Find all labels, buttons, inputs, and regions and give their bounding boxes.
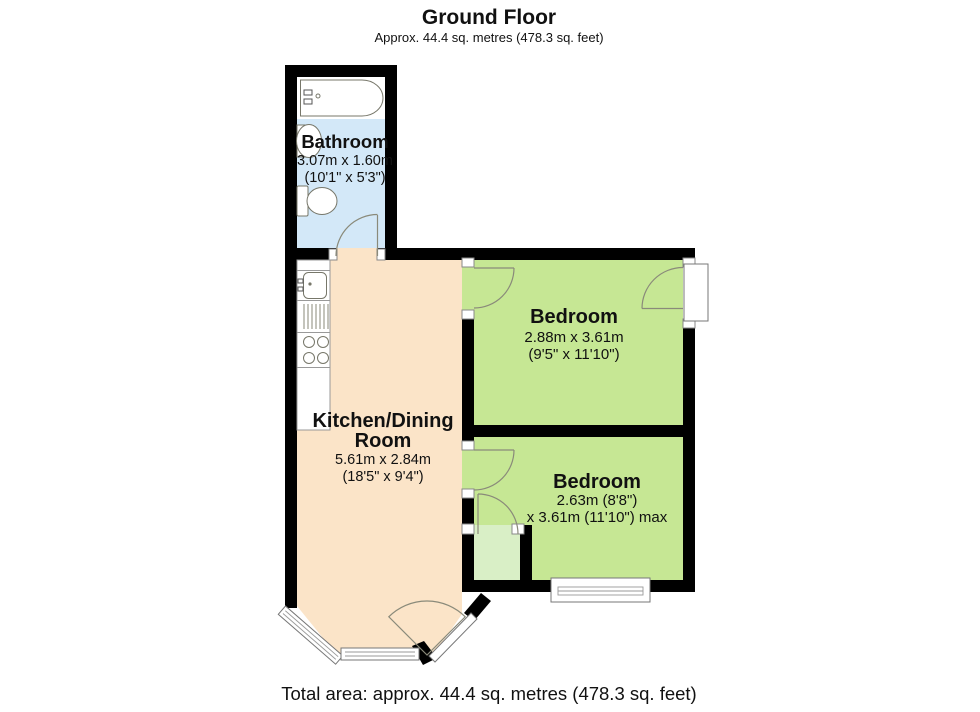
- jamb-bedroom1-door-bottom: [462, 310, 474, 319]
- wall-kitchen-divider-upper: [462, 312, 474, 443]
- jamb-bedroom1-door-top: [462, 258, 474, 267]
- bathtub-icon: [301, 80, 384, 116]
- bedroom2-dims-line2: x 3.61m (11'10") max: [527, 509, 668, 526]
- wall-mid-horizontal-right: [378, 248, 695, 260]
- jamb-bathroom-door-right: [377, 249, 385, 260]
- kitchen-fixtures: [297, 260, 330, 430]
- total-area-text: Total area: approx. 44.4 sq. metres (478…: [281, 683, 696, 704]
- wall-bedroom2-bottom-right: [648, 580, 695, 592]
- floor-plan-svg: Ground Floor Approx. 44.4 sq. metres (47…: [0, 0, 980, 712]
- bedroom2-dims-line1: 2.63m (8'8"): [557, 492, 638, 509]
- bedroom1-name: Bedroom: [530, 306, 618, 328]
- bedroom2-name: Bedroom: [553, 471, 641, 493]
- page-subtitle: Approx. 44.4 sq. metres (478.3 sq. feet): [374, 30, 603, 45]
- bathroom-label: Bathroom 3.07m x 1.60m (10'1" x 5'3"): [297, 131, 393, 186]
- jamb-closet-left: [462, 524, 474, 534]
- bathroom-dims-metric: 3.07m x 1.60m: [297, 153, 393, 169]
- wall-bathroom-top: [285, 65, 397, 77]
- jamb-bedroom2-door-top: [462, 441, 474, 450]
- wall-bedroom-divider: [462, 425, 695, 437]
- bedroom1-dims-metric: 2.88m x 3.61m: [524, 329, 623, 346]
- kitchen-drainer-icon: [304, 304, 328, 329]
- kitchen-dims-metric: 5.61m x 2.84m: [335, 452, 431, 468]
- jamb-bedroom2-door-bottom: [462, 489, 474, 498]
- wall-bedroom2-bottom-left: [520, 580, 553, 592]
- bedroom2-doorway-floor: [462, 449, 474, 490]
- bathroom-doorway-floor: [336, 248, 378, 260]
- wall-left: [285, 65, 297, 608]
- toilet-icon: [297, 186, 337, 216]
- bedroom1-label: Bedroom 2.88m x 3.61m (9'5" x 11'10"): [524, 306, 623, 363]
- floor-plan-page: Ground Floor Approx. 44.4 sq. metres (47…: [0, 0, 980, 712]
- kitchen-dims-imperial: (18'5" x 9'4"): [342, 469, 423, 485]
- bedroom2-window: [551, 578, 650, 602]
- bedroom1-dims-imperial: (9'5" x 11'10"): [528, 346, 619, 363]
- kitchen-name-line2: Room: [355, 430, 412, 452]
- wall-kitchen-divider-lower: [462, 497, 474, 592]
- wall-mid-horizontal-left: [285, 248, 336, 260]
- page-title: Ground Floor: [422, 6, 556, 29]
- bay-window-front: [341, 648, 419, 660]
- bathroom-dims-imperial: (10'1" x 5'3"): [304, 170, 385, 186]
- kitchen-name-line1: Kitchen/Dining: [312, 410, 453, 432]
- bathroom-name: Bathroom: [301, 131, 388, 152]
- wall-right: [683, 320, 695, 592]
- bedroom1-doorway-floor: [462, 266, 474, 312]
